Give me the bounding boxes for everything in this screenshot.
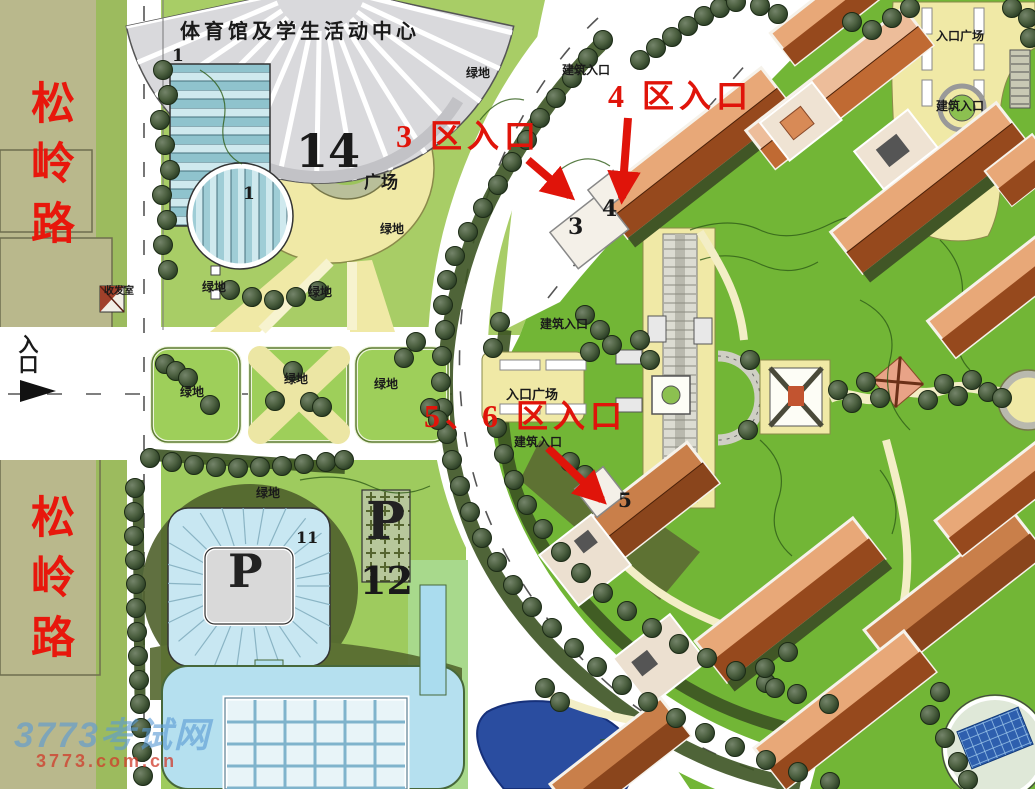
building-number-3: 3 — [568, 216, 583, 238]
lot-number-12: 12 — [360, 562, 413, 600]
building-number-14: 14 — [296, 128, 360, 174]
building-number-11: 11 — [296, 530, 318, 546]
green-space-label: 绿地 — [180, 386, 204, 398]
building-entrance-label: 建筑入口 — [540, 318, 588, 330]
road-label-songling-bottom: 松岭路 — [26, 494, 70, 674]
green-space-label: 绿地 — [466, 67, 490, 79]
building-entrance-label: 建筑入口 — [562, 64, 610, 76]
green-space-label: 绿地 — [374, 378, 398, 390]
road-label-songling-top: 松岭路 — [26, 80, 70, 260]
zone3-annotation: 3 区入口 — [396, 120, 541, 152]
round-building-1 — [190, 166, 290, 266]
map-title: 体育馆及学生活动中心 — [180, 22, 420, 42]
parking-symbol: P — [366, 496, 405, 548]
campus-map: 体育馆及学生活动中心 松岭路 松岭路 入口 收发室 绿地 绿地 绿地 绿地 绿地… — [0, 0, 1035, 789]
entrance-plaza-label: 入口广场 — [936, 30, 984, 42]
building-number-5: 5 — [618, 490, 632, 510]
zone4-annotation: 4 区入口 — [608, 80, 753, 112]
green-space-label: 绿地 — [308, 286, 332, 298]
zone56-annotation: 5、6 区入口 — [424, 400, 627, 432]
plaza-label: 广场 — [364, 174, 398, 191]
green-space-label: 绿地 — [202, 281, 226, 293]
building-entrance-label: 建筑入口 — [936, 100, 984, 112]
mail-room-label: 收发室 — [104, 287, 134, 297]
parking-symbol: P — [228, 548, 263, 594]
watermark-site-url: 3773.com.cn — [36, 752, 177, 770]
entrance-label: 入口 — [16, 334, 36, 374]
green-space-label: 绿地 — [380, 223, 404, 235]
building-number-1: 1 — [243, 186, 255, 203]
green-space-label: 绿地 — [256, 487, 280, 499]
building-number-4: 4 — [602, 198, 617, 220]
watermark-site-name: 3773考试网 — [14, 718, 211, 753]
green-space-label: 绿地 — [284, 373, 308, 385]
building-number-1: 1 — [172, 48, 184, 65]
building-entrance-label: 建筑入口 — [514, 436, 562, 448]
